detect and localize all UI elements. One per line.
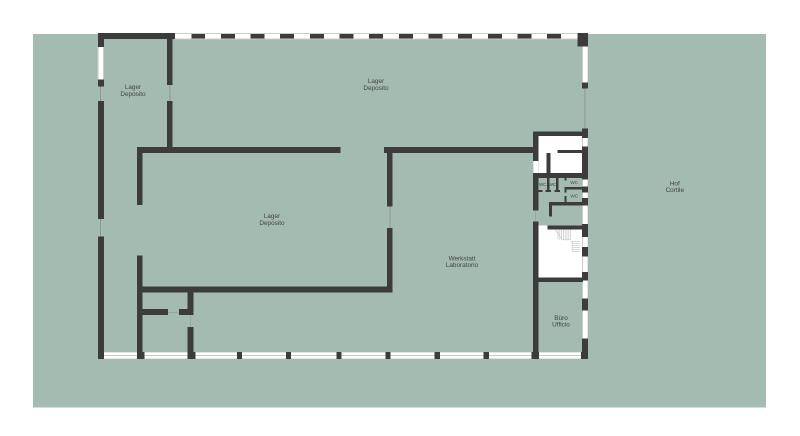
svg-text:WC: WC	[570, 194, 578, 199]
svg-text:WC: WC	[539, 182, 547, 187]
svg-text:Deposito: Deposito	[363, 85, 389, 92]
svg-text:Laboratorio: Laboratorio	[446, 262, 479, 269]
svg-text:Deposito: Deposito	[259, 220, 285, 227]
svg-text:Deposito: Deposito	[120, 91, 146, 98]
svg-text:WC: WC	[549, 182, 557, 187]
svg-text:Cortile: Cortile	[666, 187, 685, 194]
svg-text:Ufficio: Ufficio	[552, 322, 570, 329]
svg-text:WC: WC	[570, 180, 578, 185]
